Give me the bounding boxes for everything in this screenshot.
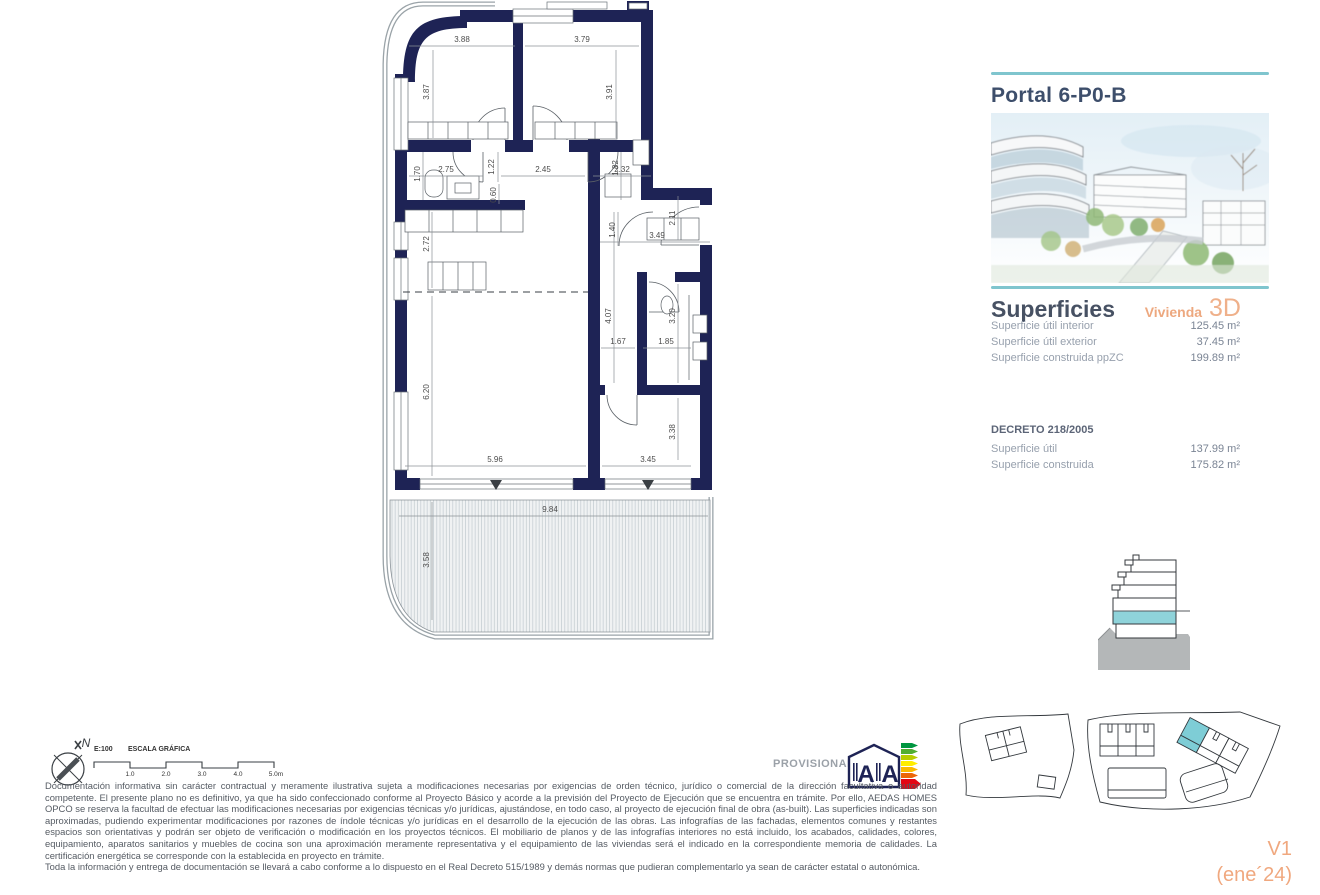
surface-label: Superficie construida xyxy=(991,457,1094,473)
version-date: (ene´24) xyxy=(1216,862,1292,888)
surface-value: 199.89 m² xyxy=(1190,350,1240,366)
dim-bath1-w: 2.75 xyxy=(438,165,454,174)
dim-bed2-w: 3.79 xyxy=(574,35,590,44)
dim-bath2-h: 1.82 xyxy=(611,160,620,176)
dim-entry-d: 3.49 xyxy=(649,231,665,240)
north-arrow xyxy=(75,741,81,749)
floor-plan: 3.88 3.79 3.87 3.91 2.75 1.70 1.22 2.45 … xyxy=(375,0,725,660)
compass-north-letter: N xyxy=(82,736,91,750)
scale-title: ESCALA GRÁFICA xyxy=(128,744,190,753)
dim-bath3-d: 3.20 xyxy=(668,308,677,324)
teal-rule-mid xyxy=(991,286,1269,289)
surface-value: 137.99 m² xyxy=(1190,441,1240,457)
scale-tick: 2.0 xyxy=(161,771,170,778)
building-section-diagram xyxy=(1098,552,1190,670)
dim-bed1-w: 3.88 xyxy=(454,35,470,44)
surface-row: Superficie útil exterior 37.45 m² xyxy=(991,334,1240,350)
dim-living-w: 5.96 xyxy=(487,455,503,464)
dim-corr2-w: 2.45 xyxy=(535,165,551,174)
dim-hall-w: 1.67 xyxy=(610,337,626,346)
surface-label: Superficie útil interior xyxy=(991,318,1094,334)
surface-label: Superficie útil exterior xyxy=(991,334,1097,350)
surface-label: Superficie construida ppZC xyxy=(991,350,1124,366)
dim-entry-h: 2.11 xyxy=(668,210,677,226)
dim-kitchen-d: 2.72 xyxy=(422,236,431,252)
scale-tick: 4.0 xyxy=(233,771,242,778)
disclaimer-paragraph-1: Documentación informativa sin carácter c… xyxy=(45,780,937,861)
building-illustration xyxy=(991,113,1269,283)
portal-title: Portal 6-P0-B xyxy=(991,84,1127,108)
terrace xyxy=(390,500,710,632)
dim-hall-d: 4.07 xyxy=(604,308,613,324)
door-arcs xyxy=(453,106,699,425)
surface-row: Superficie útil 137.99 m² xyxy=(991,441,1240,457)
decreto-title: DECRETO 218/2005 xyxy=(991,424,1094,436)
decreto-rows: Superficie útil 137.99 m² Superficie con… xyxy=(991,441,1240,473)
dim-living-d: 6.20 xyxy=(422,384,431,400)
version-stamp: V1 (ene´24) xyxy=(1216,836,1292,888)
version-number: V1 xyxy=(1216,836,1292,862)
surface-row: Superficie construida 175.82 m² xyxy=(991,457,1240,473)
dim-bed3-d: 3.38 xyxy=(668,424,677,440)
disclaimer-paragraph-2: Toda la información y entrega de documen… xyxy=(45,861,937,873)
surface-label: Superficie útil xyxy=(991,441,1057,457)
scale-tick: 1.0 xyxy=(125,771,134,778)
provisional-label: PROVISIONAL xyxy=(773,758,854,770)
dim-bath1-h: 1.70 xyxy=(413,166,422,182)
legal-disclaimer: Documentación informativa sin carácter c… xyxy=(45,780,937,873)
openings xyxy=(394,2,713,490)
surface-row: Superficie construida ppZC 199.89 m² xyxy=(991,350,1240,366)
dim-entry-w: 1.40 xyxy=(608,222,617,238)
plan-sheet: 3.88 3.79 3.87 3.91 2.75 1.70 1.22 2.45 … xyxy=(0,0,1320,895)
dim-corr1-w: 1.22 xyxy=(487,159,496,175)
surface-value: 125.45 m² xyxy=(1190,318,1240,334)
teal-rule-top xyxy=(991,72,1269,75)
superficies-rows: Superficie útil interior 125.45 m² Super… xyxy=(991,318,1240,366)
surface-value: 175.82 m² xyxy=(1190,457,1240,473)
dim-sink-w: 0.60 xyxy=(489,187,498,203)
scale-tick: 5.0m xyxy=(269,771,283,778)
site-plan xyxy=(950,702,1295,827)
dim-terrace-d: 3.58 xyxy=(422,552,431,568)
dim-terrace-w: 9.84 xyxy=(542,505,558,514)
scale-tick: 3.0 xyxy=(197,771,206,778)
dim-bath3-w: 1.85 xyxy=(658,337,674,346)
surface-value: 37.45 m² xyxy=(1197,334,1240,350)
dim-bed2-h: 3.91 xyxy=(605,84,614,100)
surface-row: Superficie útil interior 125.45 m² xyxy=(991,318,1240,334)
dim-bed1-h: 3.87 xyxy=(422,84,431,100)
scale-bar: E:100 ESCALA GRÁFICA 1.0 2.0 3.0 4.0 5.0… xyxy=(92,742,292,778)
dim-bed3-w: 3.45 xyxy=(640,455,656,464)
walls xyxy=(395,1,712,490)
scale-ratio: E:100 xyxy=(94,746,113,753)
